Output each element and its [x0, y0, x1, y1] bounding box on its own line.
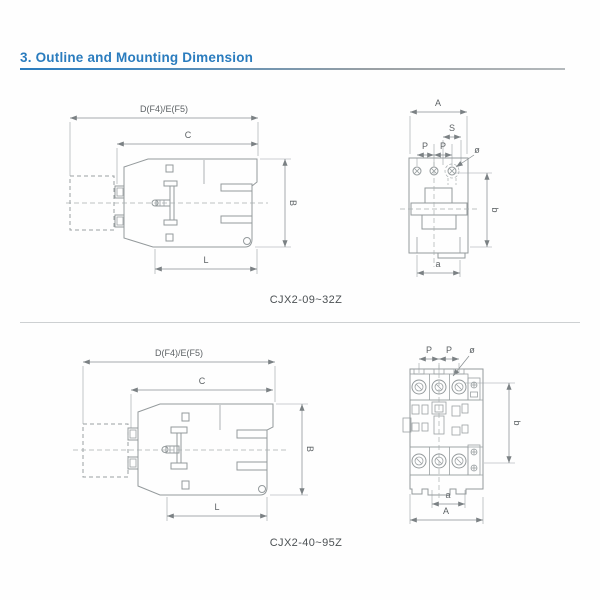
dim-label-pitch-right: P	[446, 345, 452, 355]
section-divider	[20, 322, 580, 323]
dim-label-total-width: A	[443, 506, 449, 516]
terminal-screw	[452, 380, 466, 394]
front-view-drawing-cjx2-40-95z: P P ø	[398, 342, 533, 542]
model-label: CJX2-09~32Z	[226, 294, 386, 306]
terminal-screw	[412, 380, 426, 394]
accessory-dashed-box	[83, 424, 128, 477]
mounting-screw	[413, 167, 421, 175]
document-page: 3. Outline and Mounting Dimension D(F4)/…	[0, 0, 600, 600]
dim-label-hole-dia: ø	[469, 345, 475, 355]
dim-label-hole-dia: ø	[474, 145, 480, 155]
mounting-screw-slot	[445, 164, 459, 185]
dim-label-pitch-left: P	[422, 141, 428, 151]
dim-label-pitch-right: P	[440, 141, 446, 151]
dim-label-total-width: D(F4)/E(F5)	[140, 104, 188, 114]
dim-label-mount-height: b	[490, 207, 500, 212]
dim-label-mount-width: a	[445, 490, 450, 500]
mounting-hole	[244, 238, 251, 245]
dim-label-mount-width: a	[435, 259, 440, 269]
side-view-drawing-cjx2-09-32z: D(F4)/E(F5) C	[60, 98, 300, 296]
dim-label-pitch-left: P	[426, 345, 432, 355]
terminal-screw	[452, 454, 466, 468]
mounting-hole	[259, 486, 266, 493]
model-label: CJX2-40~95Z	[226, 537, 386, 549]
contactor-body-outline	[138, 404, 273, 495]
side-view-drawing-cjx2-40-95z: D(F4)/E(F5) C	[58, 342, 318, 527]
terminal-screw	[412, 454, 426, 468]
page-title: 3. Outline and Mounting Dimension	[20, 50, 253, 65]
dim-label-total-width: D(F4)/E(F5)	[155, 348, 203, 358]
front-view-drawing-cjx2-09-32z: A S P P ø	[392, 92, 527, 297]
dim-label-body-width: C	[185, 130, 192, 140]
dim-label-lower-width: L	[203, 255, 208, 265]
dim-label-height: B	[305, 446, 315, 452]
dim-label-slot-width: S	[449, 123, 455, 133]
dim-label-lower-width: L	[214, 502, 219, 512]
dim-label-body-width: C	[199, 376, 206, 386]
dim-label-total-width: A	[435, 98, 441, 108]
dim-label-mount-height: b	[512, 420, 522, 425]
title-underline	[20, 68, 565, 70]
contactor-body-outline	[410, 369, 483, 495]
dim-label-height: B	[288, 200, 298, 206]
